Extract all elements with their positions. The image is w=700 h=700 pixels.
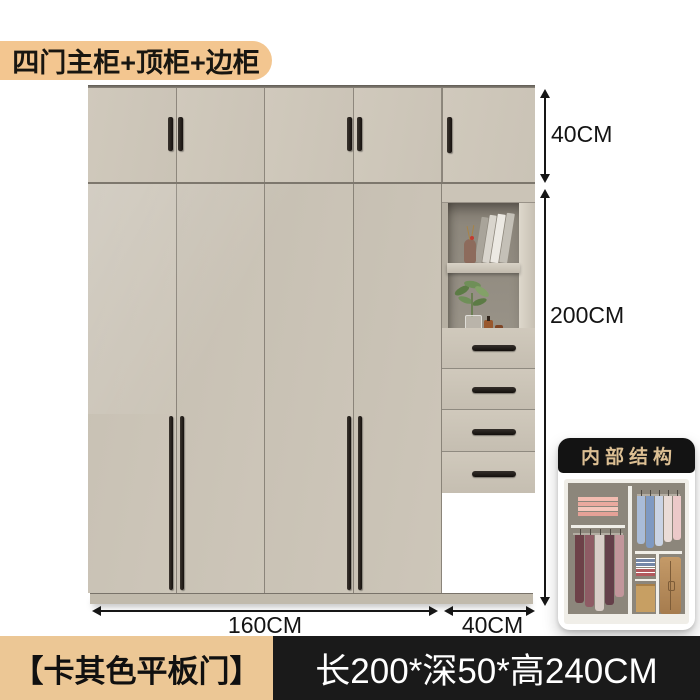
inset-card: 内部结构 — [558, 438, 695, 630]
hanging-shirt — [655, 496, 663, 546]
top-door-handle — [168, 117, 173, 151]
inset-floor — [568, 614, 685, 620]
dim-label-body-height: 200CM — [550, 302, 624, 329]
top-door-handle — [178, 117, 183, 151]
inset-divider — [656, 554, 659, 617]
inset-title: 内部结构 — [576, 442, 677, 469]
hanging-shirt — [637, 496, 645, 544]
main-door-handle — [358, 416, 362, 590]
product-image: 四门主柜+顶柜+边柜 — [0, 0, 700, 700]
drawer-3-handle — [472, 429, 516, 435]
hanging-dress — [615, 535, 624, 597]
hanging-shirt — [664, 496, 672, 542]
dim-label-top-height: 40CM — [551, 121, 612, 148]
inset-left-column — [571, 486, 625, 614]
main-door-handle — [180, 416, 184, 590]
plinth — [90, 593, 533, 604]
footer-color-text: 【卡其色平板门】 — [13, 646, 261, 691]
inset-divider — [628, 486, 632, 614]
dim-label-main-width: 160CM — [225, 612, 305, 639]
books — [476, 213, 518, 263]
hanging-dress — [575, 535, 584, 603]
footer-color-label: 【卡其色平板门】 — [0, 636, 273, 700]
dim-arrowhead — [540, 597, 550, 606]
hanging-dress — [595, 535, 604, 611]
folded-clothes-stack — [636, 568, 655, 576]
main-door-1 — [88, 184, 177, 593]
dim-label-side-width: 40CM — [455, 612, 530, 639]
top-side-door-handle — [447, 117, 452, 153]
top-cabinet-door-3 — [265, 88, 354, 182]
main-door-3 — [265, 184, 354, 593]
main-door-handle — [347, 416, 351, 590]
wardrobe — [88, 85, 535, 603]
inset-wardrobe-interior — [568, 483, 685, 620]
main-door-4 — [354, 184, 442, 593]
inset-photo — [564, 479, 689, 624]
product-badge: 四门主柜+顶柜+边柜 — [0, 41, 272, 80]
hanging-shirt — [646, 496, 654, 548]
dim-line-top-height — [544, 97, 546, 175]
drawer-4-handle — [472, 471, 516, 477]
garment-organizer — [660, 557, 681, 614]
figurine — [461, 230, 478, 263]
hanging-dress — [585, 535, 594, 607]
drawer-2-handle — [472, 387, 516, 393]
top-cabinet-door-2 — [177, 88, 265, 182]
dim-arrowhead — [540, 174, 550, 183]
folded-clothes-stack — [636, 558, 655, 567]
top-door-handle — [357, 117, 362, 151]
hanging-dress — [605, 535, 614, 605]
inset-header: 内部结构 — [558, 438, 695, 473]
top-side-cabinet-door — [442, 88, 535, 182]
top-cabinet-door-4 — [354, 88, 442, 182]
footer-size-label: 长200*深50*高240CM — [273, 636, 700, 700]
main-door-handle — [169, 416, 173, 590]
footer-size-text: 长200*深50*高240CM — [315, 643, 657, 694]
top-door-handle — [347, 117, 352, 151]
dim-line-body-height — [544, 197, 546, 598]
top-cabinet-door-1 — [88, 88, 177, 182]
shelf-board-1 — [447, 263, 520, 273]
folded-clothes-pink — [578, 497, 618, 518]
main-door-2 — [177, 184, 265, 593]
badge-label: 四门主柜+顶柜+边柜 — [12, 41, 260, 80]
inset-right-column — [635, 486, 682, 614]
storage-basket — [636, 584, 655, 612]
side-cabinet-lip — [442, 184, 535, 203]
hanging-shirt — [673, 496, 681, 540]
drawer-1-handle — [472, 345, 516, 351]
dim-arrowhead — [429, 606, 438, 616]
